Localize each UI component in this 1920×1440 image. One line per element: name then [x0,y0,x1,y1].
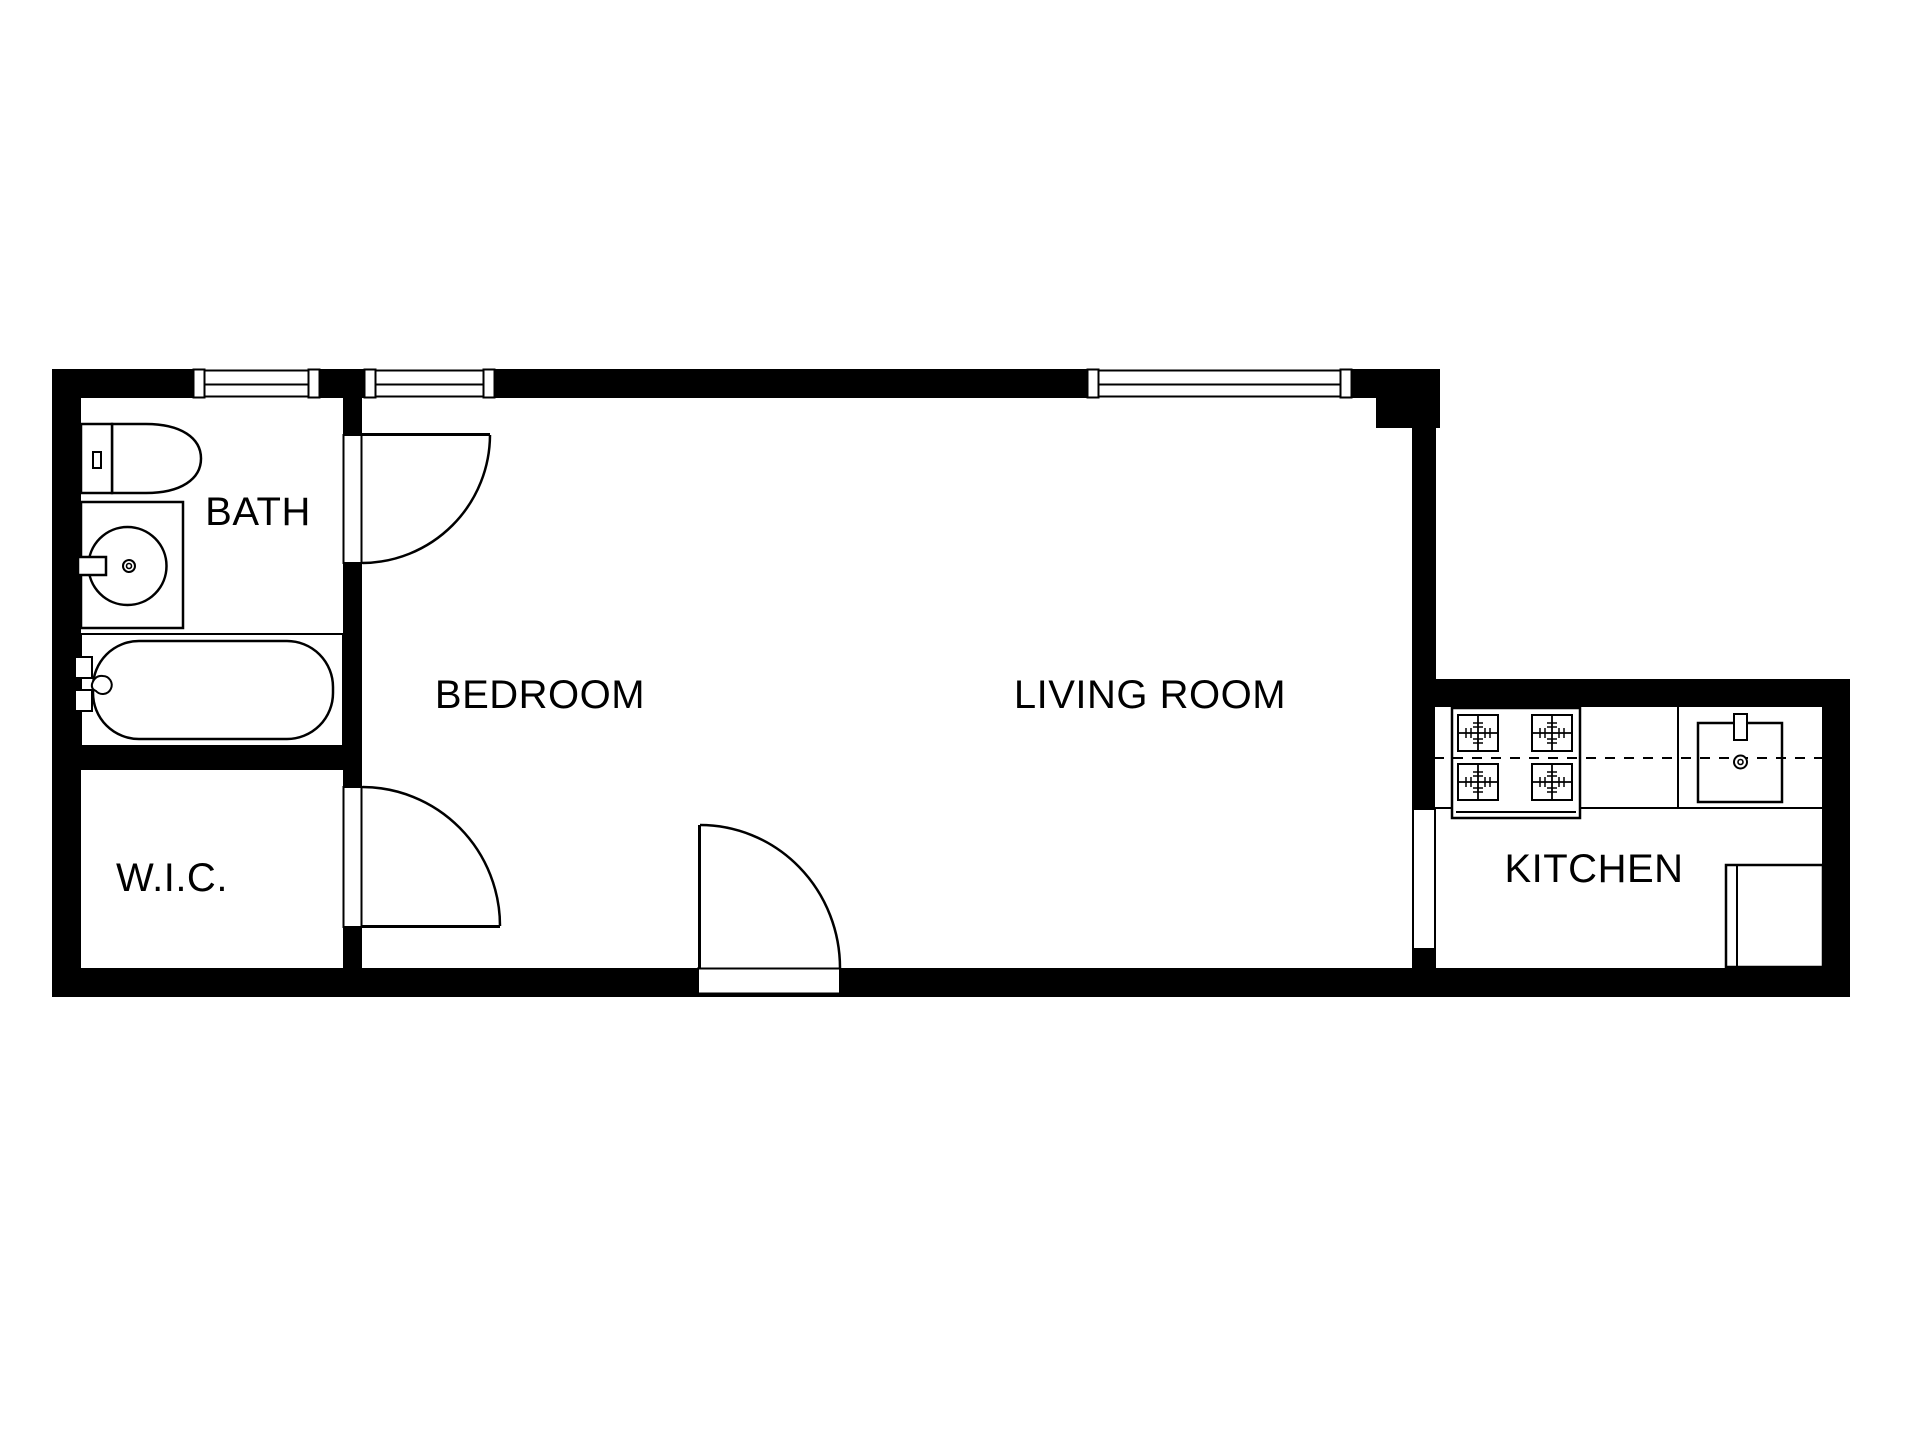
living-room-window-icon [1087,369,1352,398]
kitchen-passage [1413,810,1435,948]
bath-window-icon [193,369,320,398]
wall-bath-partition-lower [343,563,362,770]
wall-bath-wic-divider [81,746,362,770]
wall-wic-stub [343,927,362,968]
entry-door-icon [698,825,840,994]
bedroom-window-icon [364,369,495,398]
refrigerator-icon [1726,865,1823,967]
wall-bottom [52,968,1850,997]
room-label-wic: W.I.C. [116,856,228,900]
bath-fixtures [75,424,343,746]
wall-kitchen-right [1822,679,1850,997]
floor-plan: BATH W.I.C. BEDROOM LIVING ROOM KITCHEN [0,0,1920,1440]
room-label-living-room: LIVING ROOM [1014,673,1286,717]
wall-left [52,369,81,997]
wall-wic-upper [343,770,362,787]
room-label-bath: BATH [205,490,311,534]
wall-bath-partition-upper [343,398,362,435]
wall-living-right [1412,398,1436,810]
bathtub-icon [75,634,343,746]
bathroom-sink-icon [78,502,183,628]
wall-passage-stub [1412,948,1436,968]
toilet-icon [81,424,201,493]
room-label-bedroom: BEDROOM [435,673,645,717]
bath-door-icon [344,435,491,564]
floor-plan-drawing: BATH W.I.C. BEDROOM LIVING ROOM KITCHEN [0,0,1920,1440]
stove-icon [1452,708,1580,818]
tub-faucet-icon [92,676,112,694]
wic-door-icon [344,787,501,927]
wall-kitchen-top [1412,679,1850,706]
room-label-kitchen: KITCHEN [1504,847,1683,891]
kitchen-fixtures [1413,706,1823,967]
